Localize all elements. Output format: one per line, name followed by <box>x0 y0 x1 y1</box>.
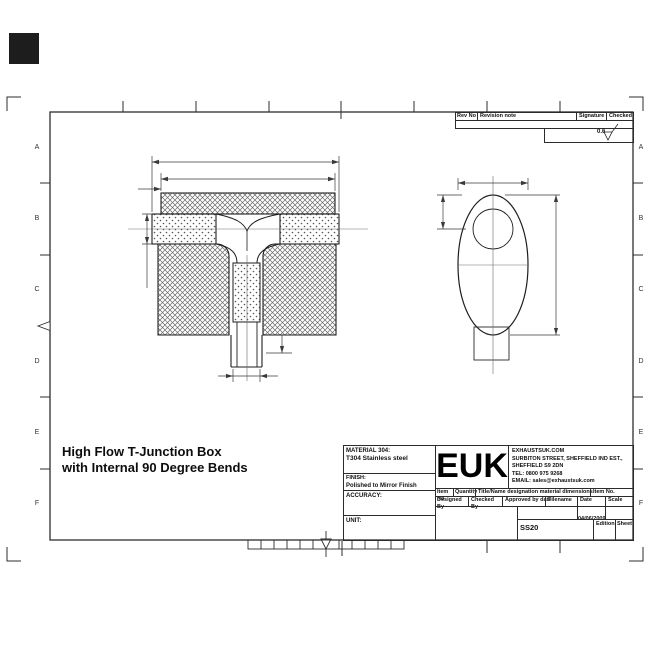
grid-row-label-right-b: B <box>635 214 647 224</box>
approval-left-cell <box>435 506 518 541</box>
company-address1: SURBITON STREET, SHEFFIELD IND EST., <box>512 456 633 464</box>
grid-row-label-left-f: F <box>31 499 43 509</box>
side-view <box>437 176 560 374</box>
grid-row-label-right-e: E <box>635 428 647 438</box>
grid-row-label-left-c: C <box>31 285 43 295</box>
date-value-cell: 04/06/2009 <box>577 506 606 520</box>
accuracy-label: ACCURACY: <box>346 492 433 500</box>
drawing-title-line2: with Internal 90 Degree Bends <box>62 460 248 476</box>
filename-value-cell <box>517 506 578 520</box>
company-logo: EUK <box>436 446 508 487</box>
material-box: MATERIAL 304: T304 Stainless steel <box>343 445 436 474</box>
grid-row-label-left-b: B <box>31 214 43 224</box>
company-tel: TEL: 0800 975 9268 <box>512 471 633 479</box>
material-value: T304 Stainless steel <box>346 455 433 463</box>
accuracy-box: ACCURACY: <box>343 490 436 516</box>
edition-cell: Edition <box>593 519 616 541</box>
drawing-title: High Flow T-Junction Box with Internal 9… <box>62 444 248 476</box>
drawing-canvas <box>0 0 650 650</box>
sheet-cell: Sheet <box>615 519 634 541</box>
grid-row-label-right-c: C <box>635 285 647 295</box>
material-label: MATERIAL 304: <box>346 447 433 455</box>
grid-row-label-right-f: F <box>635 499 647 509</box>
surface-finish-box: 0.6 <box>544 128 634 143</box>
unit-box: UNIT: <box>343 515 436 541</box>
drawing-sheet: A B C D E F A B C D E F Rev No Revision … <box>0 0 650 650</box>
side-view-dimensions <box>437 178 560 335</box>
grid-row-label-left-e: E <box>31 428 43 438</box>
outlet-pipe <box>231 322 262 367</box>
grid-row-label-right-a: A <box>635 143 647 153</box>
company-email: EMAIL: sales@exhaustsuk.com <box>512 478 633 486</box>
company-info-box: EXHAUSTSUK.COM SURBITON STREET, SHEFFIEL… <box>508 445 634 489</box>
company-address2: SHEFFIELD S9 2DN <box>512 463 633 471</box>
side-view-centerlines <box>458 176 528 374</box>
company-website: EXHAUSTSUK.COM <box>512 448 633 456</box>
edition-label: Edition <box>594 520 615 528</box>
sheet-label: Sheet <box>616 520 633 528</box>
finish-label: FINISH: <box>346 475 433 482</box>
main-view <box>128 156 368 382</box>
body-block-right <box>263 244 336 335</box>
body-block-left <box>158 244 229 335</box>
logo-box: EUK <box>435 445 509 489</box>
part-number: SS20 <box>518 522 540 533</box>
top-plate-section <box>161 193 335 214</box>
grid-row-label-left-a: A <box>31 143 43 153</box>
finish-value: Polished to Mirror Finish <box>346 482 433 490</box>
grid-row-label-left-d: D <box>31 357 43 367</box>
finish-box: FINISH: Polished to Mirror Finish <box>343 473 436 491</box>
scale-value-cell <box>605 506 634 520</box>
unit-label: UNIT: <box>346 517 433 525</box>
part-number-cell: SS20 <box>517 519 594 541</box>
surface-finish-value: 0.6 <box>597 129 605 135</box>
grid-row-label-right-d: D <box>635 357 647 367</box>
vertical-perforated-tube <box>233 263 260 322</box>
drawing-title-line1: High Flow T-Junction Box <box>62 444 248 460</box>
